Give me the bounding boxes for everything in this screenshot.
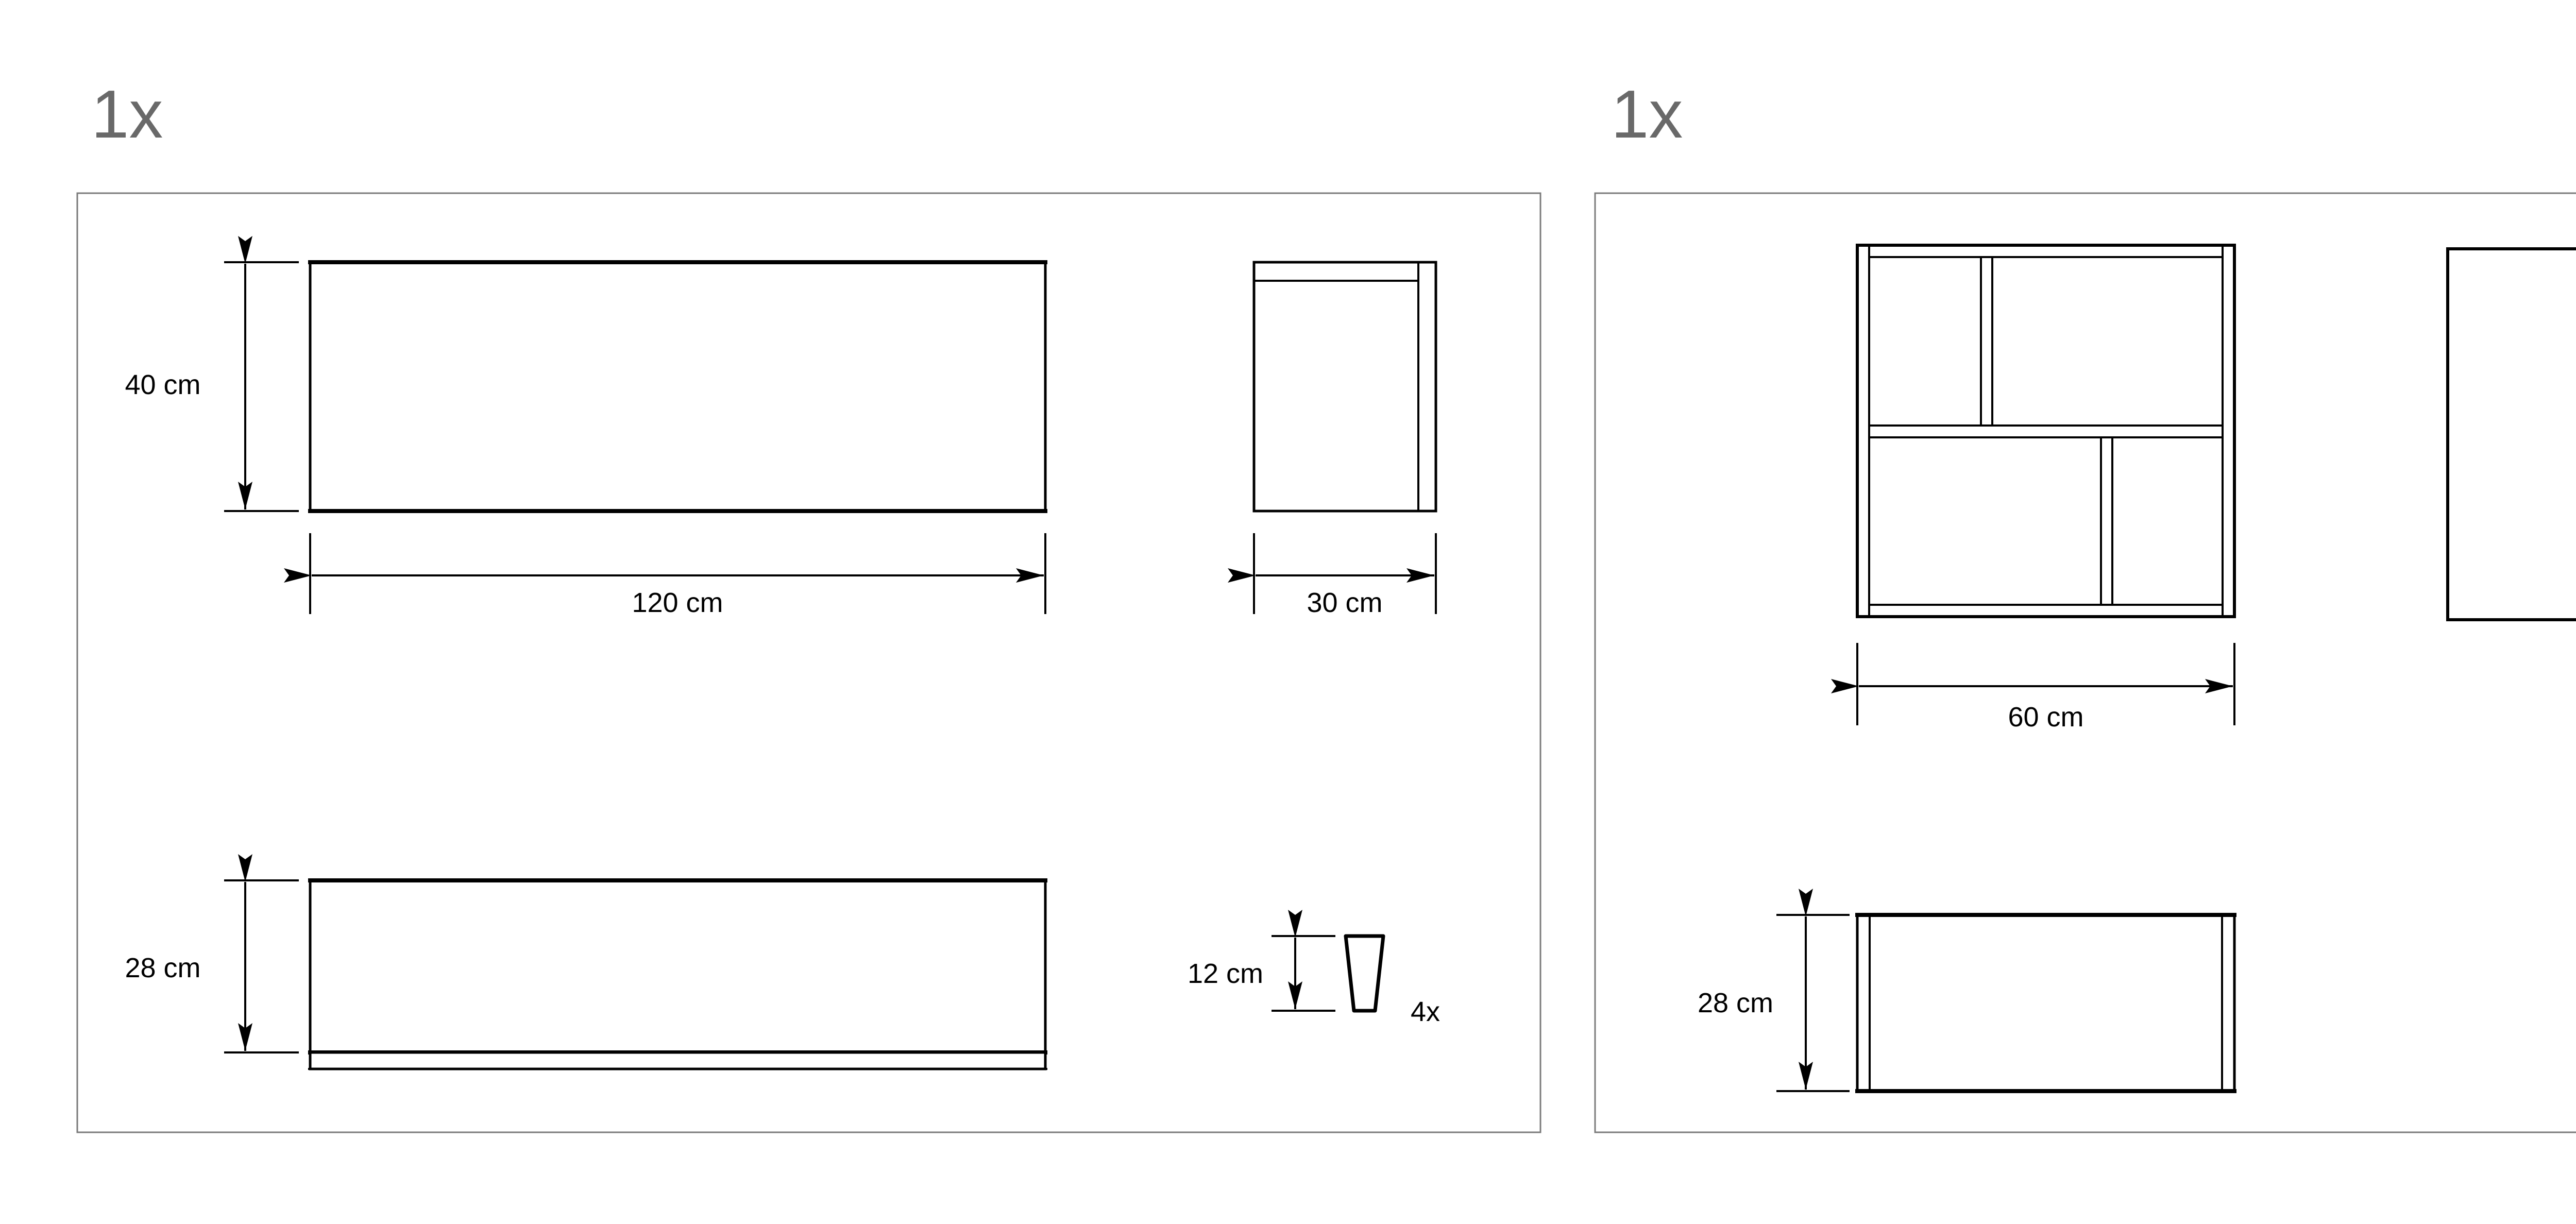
dimension-side-depth: 30 cm <box>1254 533 1436 618</box>
dimension-label: 28 cm <box>1698 988 1773 1018</box>
shelf-side-rect <box>2448 249 2576 620</box>
left-panel: 1x 40 cm 120 cm <box>77 76 1540 1132</box>
dimension-bottom-height: 28 cm <box>1698 915 1850 1091</box>
dimension-apron-height: 28 cm <box>125 880 299 1052</box>
dimension-label: 40 cm <box>125 369 200 400</box>
shelf-side-view <box>2448 249 2576 620</box>
tabletop-front-view <box>308 262 1047 511</box>
tabletop-side-view <box>1254 262 1436 511</box>
shelf-outer-rect <box>1857 245 2234 617</box>
left-quantity-label: 1x <box>91 76 163 152</box>
dimension-label: 28 cm <box>125 953 200 983</box>
side-view-rect <box>1254 262 1436 511</box>
dimension-tabletop-height: 40 cm <box>125 262 299 511</box>
dimension-shelf-width: 60 cm <box>1857 643 2234 733</box>
dimension-label: 120 cm <box>632 587 723 618</box>
tabletop-front-rect <box>310 262 1045 511</box>
leg-trapezoid <box>1346 936 1383 1011</box>
shelf-bottom-view <box>1855 915 2236 1091</box>
right-quantity-label: 1x <box>1611 76 1683 152</box>
shelf-bottom-rect <box>1857 915 2234 1091</box>
shelf-front-view <box>1857 245 2234 617</box>
apron-rect <box>310 880 1045 1052</box>
furniture-dimension-diagram: 1x 40 cm 120 cm <box>0 0 2576 1224</box>
dimension-label: 12 cm <box>1188 958 1263 989</box>
dimension-tabletop-width: 120 cm <box>310 533 1045 618</box>
dimension-label: 60 cm <box>2008 702 2083 733</box>
apron-front-view <box>308 880 1047 1069</box>
dimension-label: 30 cm <box>1307 587 1382 618</box>
leg-count-label: 4x <box>1411 996 1440 1027</box>
leg-view: 12 cm 4x <box>1188 936 1440 1027</box>
apron-bottom-strip <box>310 1052 1045 1069</box>
right-panel: 1x 60 cm <box>1595 76 2576 1132</box>
